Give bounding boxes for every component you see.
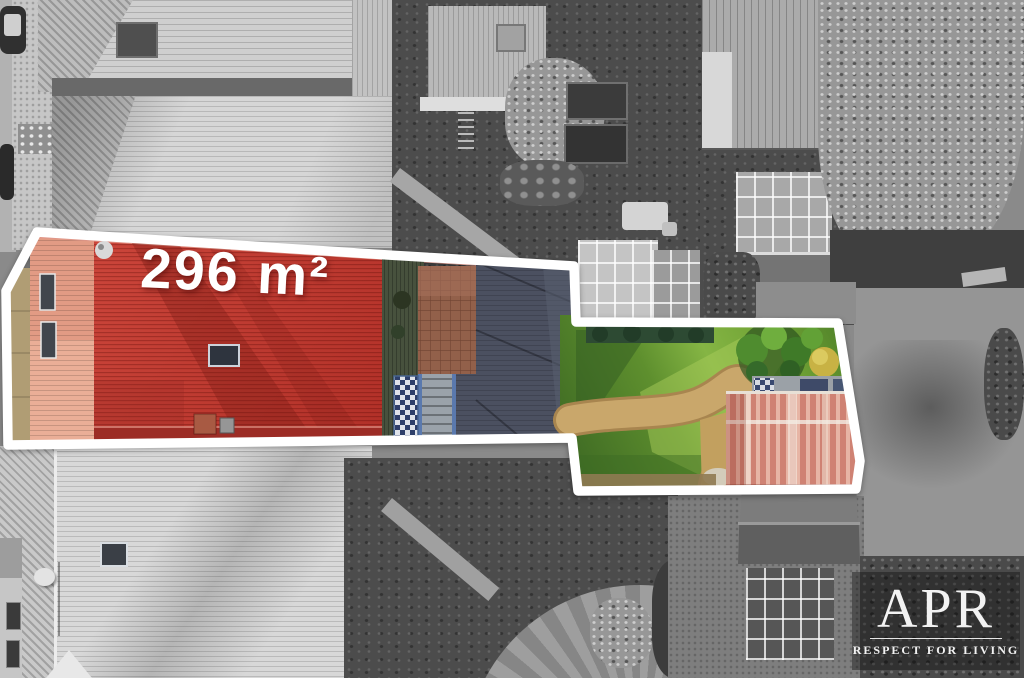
property-colored-area [0,222,866,497]
red-roof-skylight [209,345,239,366]
area-label: 296 m² [139,240,331,305]
garden-bush-4 [801,327,823,349]
aerial-property-photo: 296 m² APR RESPECT FOR LIVING [0,0,1024,678]
logo-divider-line [870,638,1002,639]
roof-vent [220,418,234,433]
agency-logo-text: APR [877,584,995,636]
agency-watermark-panel: APR RESPECT FOR LIVING [852,572,1020,670]
side-wall-window-2 [41,322,56,358]
agency-tagline: RESPECT FOR LIVING [853,643,1019,658]
checkered-pool-cover [394,376,418,442]
side-wall-window-1 [40,274,55,310]
satellite-dish [95,241,113,259]
red-roof-chimney [194,414,216,434]
